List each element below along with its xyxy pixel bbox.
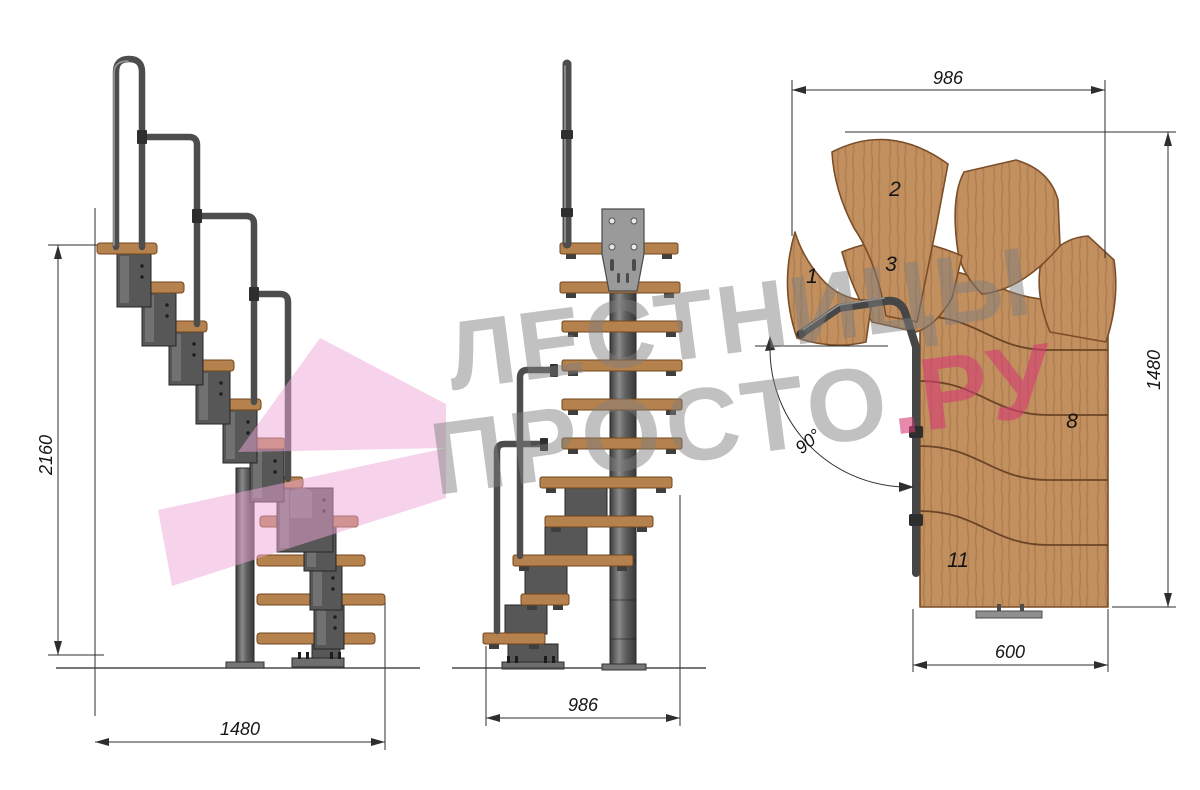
dimension-arrow [54, 641, 62, 655]
anchor-bolt [515, 656, 518, 663]
dimension-arrow [913, 661, 927, 669]
dimension-arrow [1091, 86, 1105, 94]
anchor-bolt [330, 652, 333, 659]
step-number: 2 [888, 178, 901, 201]
tread-bracket [529, 644, 539, 649]
plan-flight-width-dimension: 600 [995, 642, 1025, 662]
column-base-plate [292, 658, 344, 667]
anchor-bolt [552, 656, 555, 663]
base-plate [976, 611, 1042, 618]
handrail-clamp [561, 208, 573, 217]
step-module-highlight [120, 256, 129, 303]
handrail-clamp [192, 209, 202, 223]
dimension-arrow [95, 738, 109, 746]
bolt [140, 275, 143, 278]
anchor-bolt [298, 652, 301, 659]
plate-hole [609, 218, 615, 224]
handrail-clamp [561, 130, 573, 139]
tread [483, 633, 545, 644]
plate-hole [609, 244, 615, 250]
dimension-arrow [1094, 661, 1108, 669]
tread [513, 555, 633, 566]
bolt [192, 353, 195, 356]
bolt [246, 431, 249, 434]
base-plate-stud [1020, 604, 1024, 611]
front-width-dimension: 986 [568, 695, 599, 715]
tread [97, 243, 157, 254]
anchor-bolt [338, 652, 341, 659]
handrail-loop [116, 59, 142, 247]
tread-bracket [519, 566, 529, 571]
side-height-dimension: 2160 [36, 435, 56, 476]
dimension-arrow [371, 738, 385, 746]
plate-slot [610, 259, 614, 271]
bolt [165, 303, 168, 306]
anchor-bolt [507, 656, 510, 663]
side-width-dimension: 1480 [220, 719, 260, 739]
handrail-clamp [909, 514, 923, 526]
tread-bracket [566, 254, 576, 259]
dimension-arrow [54, 245, 62, 259]
tread-bracket [656, 488, 666, 493]
tread [521, 594, 569, 605]
tread-bracket [637, 527, 647, 532]
watermark-accent: .РУ [882, 321, 1062, 457]
bolt [333, 615, 336, 618]
bolt [273, 470, 276, 473]
anchor-bolt [306, 652, 309, 659]
step-module-highlight [313, 568, 322, 606]
column-base-plate [602, 664, 646, 670]
ribbon-band [238, 338, 446, 452]
tread-bracket [527, 605, 537, 610]
dimension-arrow [1164, 132, 1172, 146]
bolt [331, 587, 334, 590]
tread-bracket [489, 644, 499, 649]
handrail-clamp [249, 287, 259, 301]
staircase-drawing-canvas: 2160 1480 [0, 0, 1200, 790]
base-plate-stud [997, 604, 1001, 611]
bolt [140, 264, 143, 267]
dimension-arrow [486, 714, 500, 722]
anchor-bolt [544, 656, 547, 663]
plate-hole [631, 218, 637, 224]
column-base-plate [226, 662, 264, 668]
bolt [165, 314, 168, 317]
angle-arrow [899, 482, 914, 492]
step-number: 8 [1066, 410, 1078, 433]
step-module [505, 605, 547, 634]
bolt [273, 459, 276, 462]
tread-bracket [662, 254, 672, 259]
bolt [192, 342, 195, 345]
dimension-arrow [666, 714, 680, 722]
plan-width-dimension: 986 [933, 68, 964, 88]
dimension-arrow [792, 86, 806, 94]
tread [545, 516, 653, 527]
step-number: 11 [947, 549, 969, 572]
modular-staircase-drawing: 2160 1480 [0, 0, 1200, 790]
tread-bracket [617, 566, 627, 571]
bolt [333, 626, 336, 629]
plate-slot [632, 259, 636, 271]
bolt [331, 576, 334, 579]
plate-hole [631, 244, 637, 250]
bolt [219, 392, 222, 395]
step-module [525, 566, 567, 595]
tread-bracket [551, 527, 561, 532]
tread-bracket [553, 605, 563, 610]
step-module-highlight [317, 607, 326, 645]
bolt [219, 381, 222, 384]
bolt [246, 420, 249, 423]
handrail-clamp [137, 130, 147, 144]
plan-depth-dimension: 1480 [1144, 350, 1164, 390]
dimension-arrow [1164, 593, 1172, 607]
